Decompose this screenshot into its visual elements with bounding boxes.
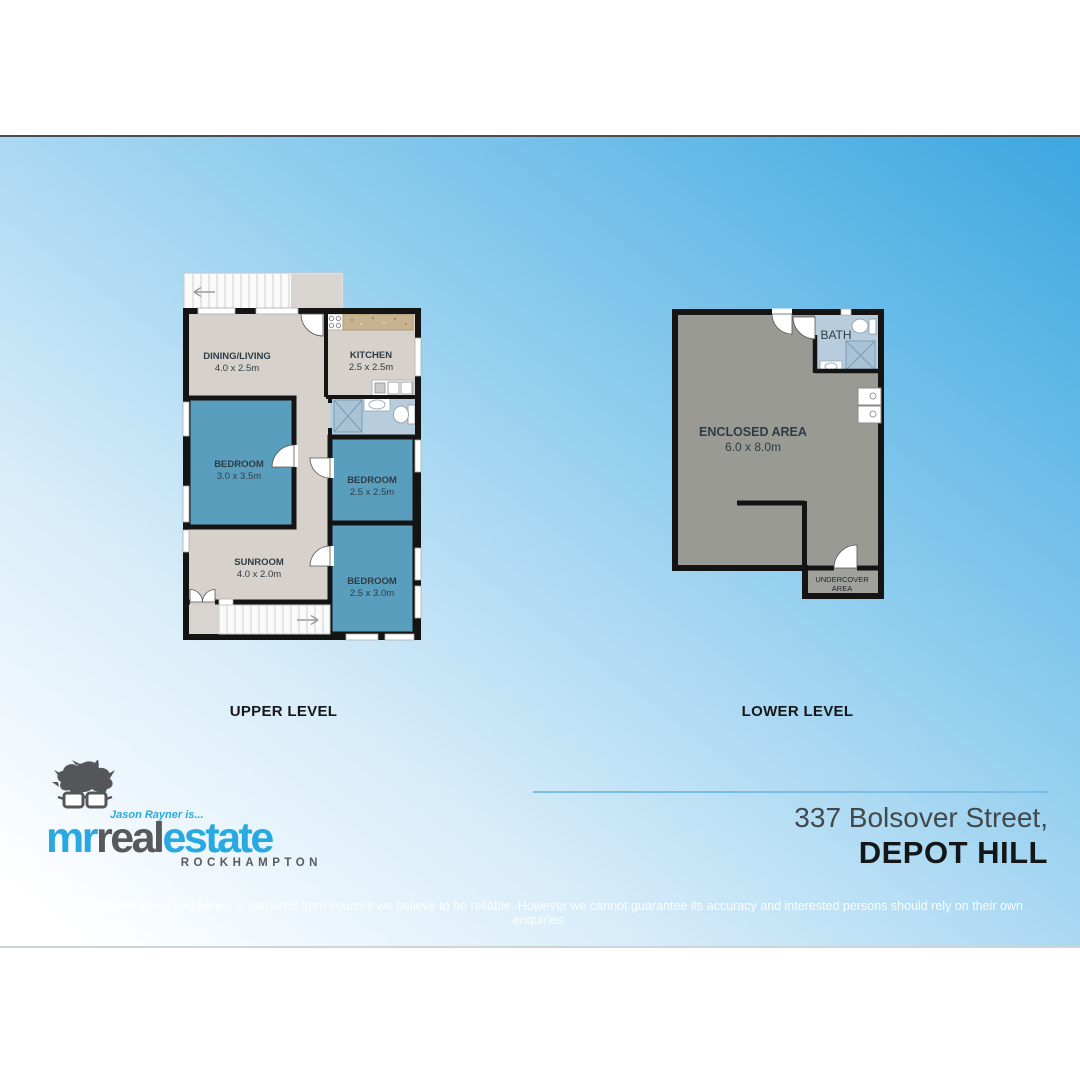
brand-estate: estate — [162, 814, 271, 862]
room-label: KITCHEN — [350, 350, 392, 361]
lower-floor-plan: BATH ENCLOSED AREA 6.0 x 8.0m UNDERCOVER… — [670, 305, 885, 605]
room-label: ENCLOSED AREA — [699, 425, 807, 439]
lower-level-label: LOWER LEVEL — [690, 703, 905, 720]
room-dims: 2.5 x 2.5m — [349, 362, 393, 373]
vanity-icon — [364, 398, 390, 411]
room-label: UNDERCOVER — [815, 575, 869, 584]
kitchen-bench-icon — [343, 314, 413, 330]
address-divider — [533, 791, 1048, 793]
cartoon-face-icon — [52, 760, 116, 822]
room-label: BATH — [820, 328, 851, 342]
room-label: DINING/LIVING — [203, 351, 271, 362]
room-label: AREA — [832, 584, 852, 593]
flyer-page: DINING/LIVING 4.0 x 2.5m KITCHEN 2.5 x 2… — [0, 0, 1080, 1080]
shower-icon — [334, 400, 362, 432]
brand-mr: mr — [46, 814, 96, 862]
stairs-down-icon — [189, 605, 330, 634]
room-dims: 6.0 x 8.0m — [725, 440, 781, 454]
window-icon — [841, 309, 851, 315]
room-dims: 3.0 x 3.5m — [217, 471, 261, 482]
room-dims: 2.5 x 2.5m — [350, 487, 394, 498]
agency-logo: Jason Rayner is... mrrealestate ROCKHAMP… — [46, 760, 336, 875]
brand-region: ROCKHAMPTON — [46, 857, 322, 869]
room-dims: 4.0 x 2.0m — [237, 569, 281, 580]
brand-real: real — [96, 814, 163, 862]
room-label: SUNROOM — [234, 557, 284, 568]
upper-floor-plan: DINING/LIVING 4.0 x 2.5m KITCHEN 2.5 x 2… — [181, 268, 422, 643]
toilet-icon — [852, 319, 876, 334]
address-street: 337 Bolsover Street, — [533, 801, 1048, 835]
room-label: BEDROOM — [347, 475, 397, 486]
room-label: BEDROOM — [214, 459, 264, 470]
property-address: 337 Bolsover Street, DEPOT HILL — [533, 791, 1048, 870]
room-dims: 2.5 x 3.0m — [350, 588, 394, 599]
room-label: BEDROOM — [347, 576, 397, 587]
laundry-tubs-icon — [858, 388, 881, 423]
stove-icon — [327, 314, 343, 330]
upper-level-label: UPPER LEVEL — [163, 703, 404, 720]
toilet-icon — [394, 405, 416, 424]
shower-icon — [846, 341, 875, 370]
stairs-up-icon — [184, 273, 343, 311]
room-dims: 4.0 x 2.5m — [215, 363, 259, 374]
disclaimer-text: All information contained herein is gath… — [40, 899, 1040, 927]
address-suburb: DEPOT HILL — [533, 835, 1048, 871]
brand-wordmark: mrrealestate — [46, 817, 272, 860]
sink-icon — [372, 380, 413, 396]
